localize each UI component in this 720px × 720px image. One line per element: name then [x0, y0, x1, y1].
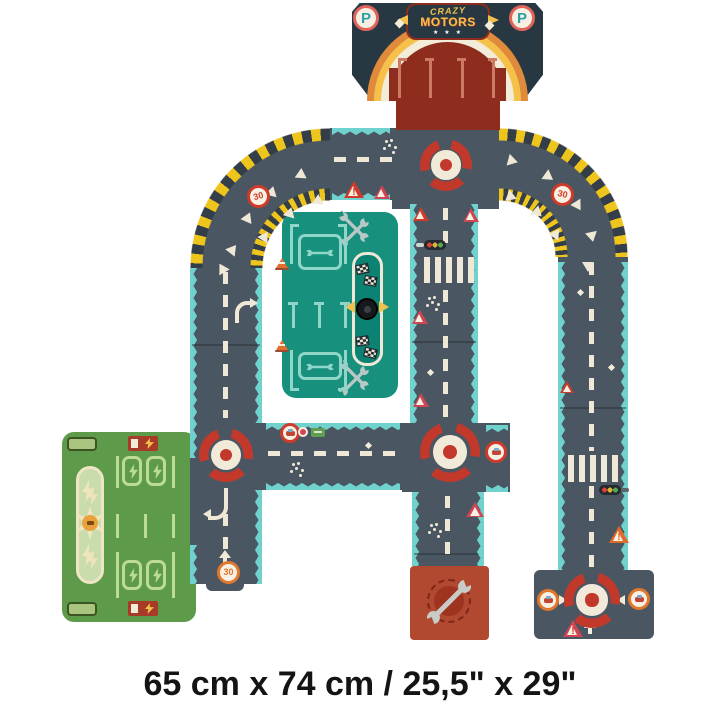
- speed-30-sign: 30: [217, 561, 240, 584]
- charging-bay-box: [146, 456, 166, 486]
- sparkle-icon: [295, 467, 298, 470]
- lane-dashes: [589, 486, 594, 570]
- green-info-sign: [311, 428, 325, 437]
- wrench-icon: [305, 362, 335, 372]
- tire-icon: [356, 298, 378, 320]
- tool-sign: [298, 352, 342, 380]
- lightning-badge: [128, 601, 158, 616]
- warning-triangle-icon: [466, 502, 484, 517]
- parking-bay-line: [492, 60, 495, 98]
- bay-line: [338, 224, 347, 227]
- u-turn-arrow: [204, 488, 230, 524]
- road-edge: [486, 425, 508, 432]
- road-edge: [190, 268, 197, 458]
- car-direction-sign: [537, 589, 559, 611]
- warning-triangle-icon: [412, 310, 428, 324]
- checkered-flag-icon: [363, 275, 378, 287]
- lightning-icon: [145, 603, 154, 614]
- crosswalk-icon: [568, 455, 618, 482]
- road-edge: [486, 485, 508, 492]
- chevron-icon: [582, 262, 594, 272]
- chevron-icon: [295, 168, 308, 179]
- warning-triangle-icon: !: [563, 620, 583, 637]
- traffic-light-pole: [416, 243, 424, 247]
- road-edge: [558, 262, 565, 570]
- parking-bay-line: [398, 60, 401, 98]
- bay-line: [116, 552, 119, 598]
- wrench-icon: [421, 574, 478, 631]
- roundabout-icon: [199, 428, 253, 482]
- bay-line: [338, 388, 347, 391]
- charger-meter-icon: [67, 437, 97, 451]
- road-edge: [266, 483, 400, 490]
- charging-parking-piece: [62, 432, 196, 622]
- crazy-motors-logo: CRAZY MOTORS ★ ★ ★: [406, 3, 490, 40]
- checkered-flag-icon: [355, 335, 369, 347]
- turn-right-arrow: [233, 295, 257, 323]
- lane-dashes: [445, 496, 450, 558]
- no-entry-car-sign: [280, 423, 300, 443]
- warning-triangle-icon: !: [609, 526, 629, 543]
- sparkle-icon: [388, 144, 391, 147]
- charging-bay-box: [122, 560, 142, 590]
- warning-triangle-icon: [413, 207, 429, 221]
- flame-icon: [379, 301, 389, 313]
- bay-line: [172, 456, 175, 488]
- bay-line: [290, 388, 299, 391]
- traffic-light-icon: [424, 240, 446, 250]
- parking-bay-line: [461, 60, 464, 98]
- sparkle-icon: [433, 528, 436, 531]
- road-edge: [255, 490, 262, 584]
- lane-dashes: [334, 157, 392, 162]
- charging-bay-box: [146, 560, 166, 590]
- parking-lot-tab: [396, 100, 500, 130]
- lane-dashes: [443, 290, 448, 420]
- parking-bay-line: [429, 60, 432, 98]
- crazy-motors-road-puzzle: 30 30 30 ! ! !: [0, 0, 720, 720]
- traffic-cone-icon: [275, 338, 289, 352]
- bay-line: [344, 350, 347, 390]
- lane-dashes: [223, 272, 228, 418]
- lane-dashes: [268, 451, 398, 456]
- car-direction-sign: [628, 588, 650, 610]
- road-tab: [206, 584, 244, 591]
- logo-stars: ★ ★ ★: [433, 29, 463, 36]
- bay-line: [172, 552, 175, 598]
- chevron-icon: [312, 194, 325, 205]
- crosswalk-icon: [424, 257, 474, 283]
- charging-bay-box: [122, 456, 142, 486]
- warning-triangle-icon: !: [344, 181, 364, 198]
- logo-line2: MOTORS: [420, 16, 475, 29]
- lightning-icon: [145, 438, 154, 449]
- logo-line1: CRAZY: [430, 6, 466, 17]
- road-edge: [190, 545, 197, 584]
- car-direction-sign: [485, 441, 507, 463]
- bay-line: [344, 226, 347, 264]
- round-sign: [298, 427, 308, 437]
- warning-triangle-icon: [374, 185, 390, 199]
- lightning-badge: [128, 436, 158, 451]
- warning-triangle-icon: [413, 393, 429, 407]
- roundabout-icon: [420, 139, 472, 191]
- dimensions-caption: 65 cm x 74 cm / 25,5" x 29": [0, 664, 720, 705]
- sparkle-icon: [431, 301, 434, 304]
- charger-meter-icon: [67, 602, 97, 616]
- roundabout-icon: [420, 422, 480, 482]
- warning-triangle-icon: [560, 381, 574, 393]
- bay-line: [116, 456, 119, 488]
- road-edge: [471, 204, 478, 423]
- traffic-light-icon: [599, 485, 621, 495]
- bay-line: [290, 350, 293, 390]
- traffic-light-pole: [621, 488, 629, 492]
- parking-badge-icon: P: [509, 5, 535, 31]
- parking-lot: [389, 68, 506, 100]
- parking-badge-icon: P: [353, 5, 379, 31]
- warning-triangle-icon: [463, 208, 479, 222]
- parking-structure: P P CRAZY MOTORS ★ ★ ★: [352, 3, 543, 130]
- lane-dashes: [589, 263, 594, 451]
- road-edge: [621, 262, 628, 570]
